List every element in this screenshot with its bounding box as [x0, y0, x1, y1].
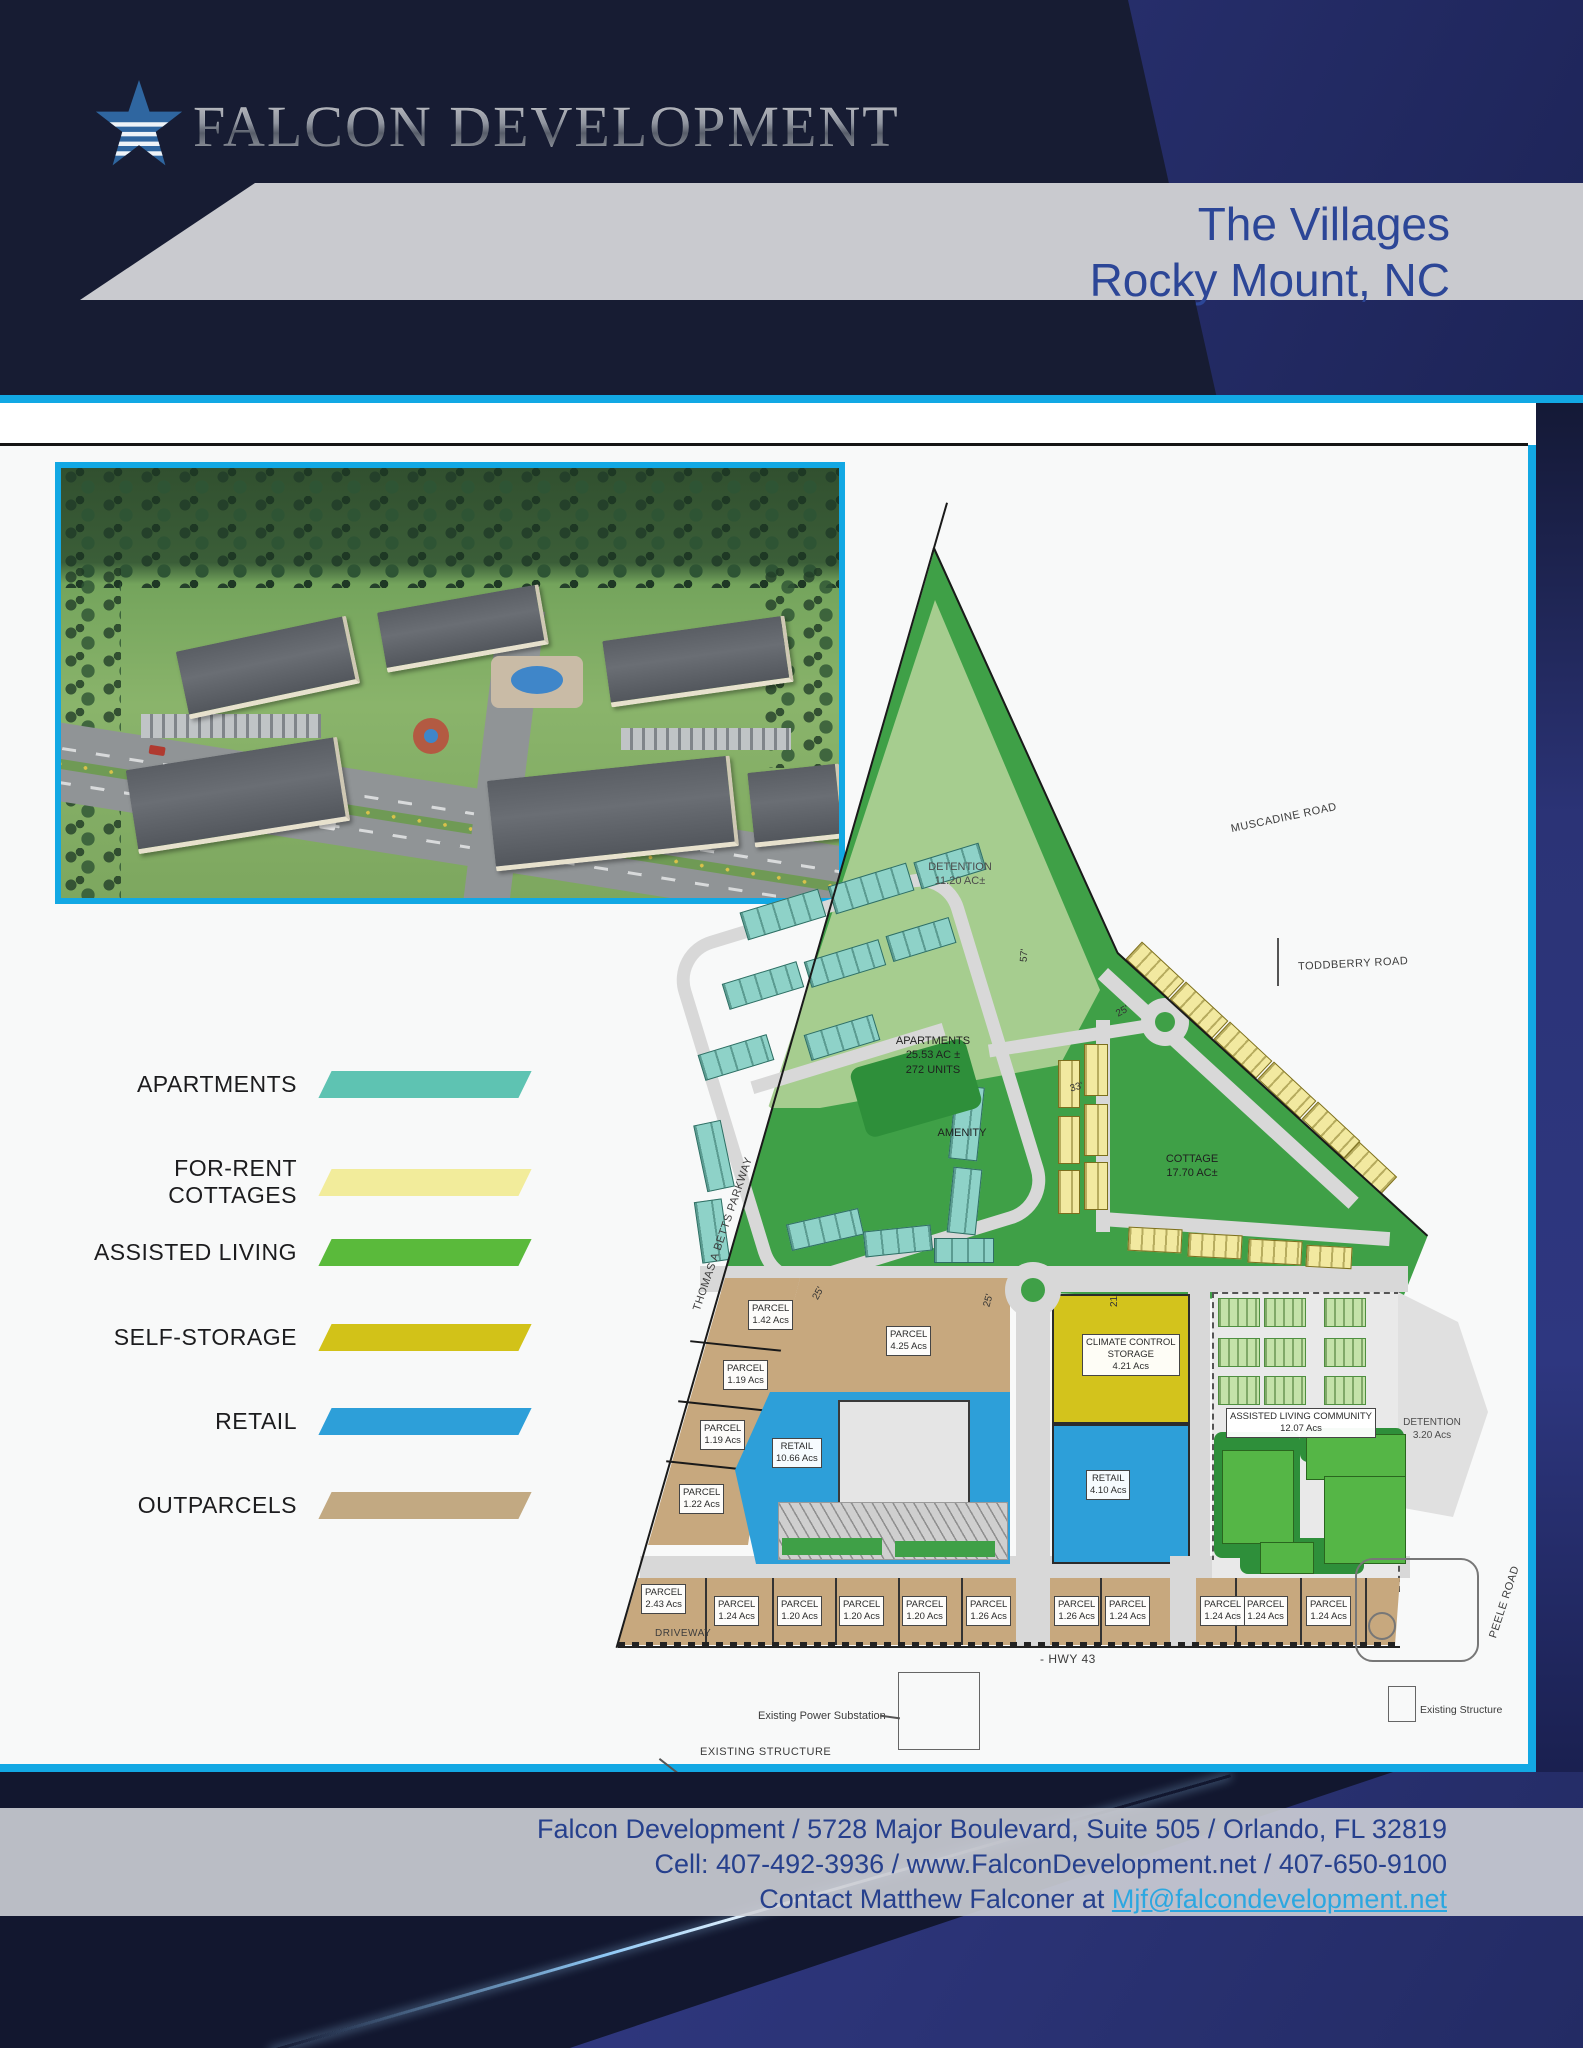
- label-driveway: DRIVEWAY: [655, 1628, 711, 1639]
- plan-detention-east: [1398, 1292, 1493, 1517]
- assisted-cottage-row: [1324, 1338, 1366, 1367]
- dimension-label: 21': [1109, 1294, 1120, 1307]
- label-detention-north: DETENTION 11.20 AC±: [898, 860, 1022, 889]
- parcel-label: PARCEL1.24 Acs: [1243, 1596, 1288, 1626]
- cottage-building: [1305, 1245, 1352, 1269]
- parcel-label: PARCEL1.42 Acs: [748, 1300, 793, 1330]
- flyer-page: FALCON DEVELOPMENT The Villages Rocky Mo…: [0, 0, 1583, 2048]
- label-muscadine-road: MUSCADINE ROAD: [1230, 801, 1338, 835]
- parcel-label: PARCEL1.24 Acs: [1306, 1596, 1351, 1626]
- road-east-entrance: [1170, 1556, 1196, 1648]
- boundary-west-extension: [931, 502, 948, 554]
- parcel-label: PARCEL1.26 Acs: [1054, 1596, 1099, 1626]
- retail-main-label: RETAIL10.66 Acs: [772, 1438, 822, 1468]
- cottage-building: [1127, 1227, 1182, 1254]
- parcel-label: PARCEL1.26 Acs: [966, 1596, 1011, 1626]
- assisted-cottage-row: [1264, 1298, 1306, 1327]
- footer-contact: Falcon Development / 5728 Major Boulevar…: [0, 1812, 1583, 1917]
- existing-structure-se-detail: [1368, 1612, 1396, 1640]
- label-existing-structure-se: Existing Structure: [1420, 1704, 1502, 1716]
- parcel-label: PARCEL1.19 Acs: [723, 1360, 768, 1390]
- road-retail-east: [1188, 1292, 1210, 1560]
- assisted-cottage-row: [1218, 1298, 1260, 1327]
- footer-contact-prefix: Contact Matthew Falconer at: [759, 1884, 1112, 1914]
- cottage-building: [1058, 1116, 1080, 1164]
- parcel-divider: [835, 1578, 837, 1645]
- parcel-divider: [898, 1578, 900, 1645]
- cottage-building: [1187, 1233, 1242, 1260]
- label-apartments: APARTMENTS 25.53 AC ± 272 UNITS: [868, 1034, 998, 1077]
- assisted-building: [1260, 1542, 1314, 1574]
- label-existing-structure-sw: EXISTING STRUCTURE: [700, 1746, 831, 1758]
- assisted-cottage-row: [1218, 1376, 1260, 1405]
- parcel-label: PARCEL1.20 Acs: [777, 1596, 822, 1626]
- label-amenity: AMENITY: [916, 1126, 1008, 1140]
- label-cottage: COTTAGE 17.70 AC±: [1146, 1152, 1238, 1181]
- cottage-building: [1084, 1104, 1108, 1156]
- retail-bigbox-building: [838, 1400, 970, 1504]
- parcel-label: PARCEL1.22 Acs: [679, 1484, 724, 1514]
- landscape-strip: [895, 1541, 995, 1557]
- label-peele-road: PEELE ROAD: [1487, 1512, 1539, 1639]
- assisted-building: [1324, 1476, 1406, 1564]
- parcel-divider: [772, 1578, 774, 1645]
- footer-address: Falcon Development / 5728 Major Boulevar…: [0, 1812, 1447, 1847]
- parcel-label: PARCEL1.20 Acs: [902, 1596, 947, 1626]
- cottage-building: [1084, 1162, 1108, 1210]
- assisted-building: [1222, 1450, 1294, 1544]
- assisted-cottage-row: [1264, 1376, 1306, 1405]
- footer-phones: Cell: 407-492-3936 / www.FalconDevelopme…: [0, 1847, 1447, 1882]
- dimension-label: 57': [1018, 949, 1030, 963]
- assisted-cottage-row: [1218, 1338, 1260, 1367]
- landscape-strip: [782, 1538, 882, 1555]
- existing-structure-small-outline: [1388, 1686, 1416, 1722]
- label-toddberry-road: TODDBERRY ROAD: [1298, 955, 1409, 973]
- parcel-label: PARCEL1.24 Acs: [1105, 1596, 1150, 1626]
- storage-label: CLIMATE CONTROL STORAGE 4.21 Acs: [1082, 1334, 1180, 1376]
- site-plan: DETENTION 11.20 AC± APARTMENTS 25.53 AC …: [0, 0, 1583, 2048]
- cottage-building: [1247, 1239, 1302, 1266]
- label-hwy-43: - HWY 43: [1040, 1652, 1096, 1666]
- retail-east-label: RETAIL4.10 Acs: [1086, 1470, 1130, 1500]
- assisted-living-label: ASSISTED LIVING COMMUNITY12.07 Acs: [1226, 1408, 1376, 1438]
- boundary-south: [618, 1646, 1400, 1648]
- label-power-substation: Existing Power Substation: [758, 1710, 886, 1722]
- roundabout-center: [1021, 1278, 1045, 1302]
- parcel-label: PARCEL4.25 Acs: [886, 1326, 931, 1356]
- parcel-label: PARCEL1.19 Acs: [700, 1420, 745, 1450]
- power-substation-outline: [898, 1672, 980, 1750]
- existing-structure-se-outline: [1355, 1558, 1479, 1662]
- roundabout-center: [1155, 1012, 1175, 1032]
- footer: Falcon Development / 5728 Major Boulevar…: [0, 1772, 1583, 2048]
- cottage-building: [1058, 1170, 1080, 1214]
- road-main-entrance: [1016, 1290, 1050, 1648]
- parcel-label: PARCEL1.24 Acs: [1200, 1596, 1245, 1626]
- parcel-label: PARCEL1.24 Acs: [714, 1596, 759, 1626]
- assisted-cottage-row: [1324, 1298, 1366, 1327]
- parcel-divider: [1100, 1578, 1102, 1645]
- parcel-divider: [961, 1578, 963, 1645]
- cottage-building: [1084, 1044, 1108, 1096]
- email-link[interactable]: Mjf@falcondevelopment.net: [1112, 1884, 1447, 1914]
- label-detention-east: DETENTION3.20 Acs: [1400, 1416, 1464, 1442]
- assisted-building: [1306, 1434, 1406, 1480]
- apartment-building: [934, 1238, 994, 1263]
- assisted-cottage-row: [1264, 1338, 1306, 1367]
- assisted-cottage-row: [1324, 1376, 1366, 1405]
- parcel-divider: [1300, 1578, 1302, 1645]
- toddberry-tick: [1277, 938, 1279, 986]
- parcel-label: PARCEL2.43 Acs: [641, 1584, 686, 1614]
- footer-contact-line: Contact Matthew Falconer at Mjf@falconde…: [0, 1882, 1447, 1917]
- parcel-label: PARCEL1.20 Acs: [839, 1596, 884, 1626]
